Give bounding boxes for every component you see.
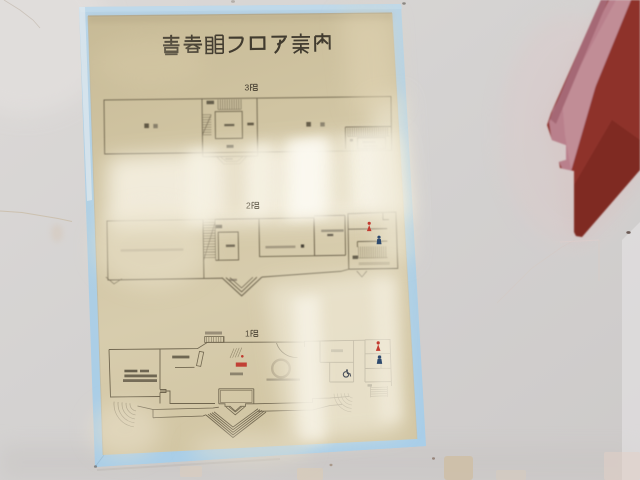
svg-text:2: 2 xyxy=(246,201,251,211)
svg-text:3: 3 xyxy=(245,83,250,93)
svg-text:1: 1 xyxy=(245,329,250,339)
